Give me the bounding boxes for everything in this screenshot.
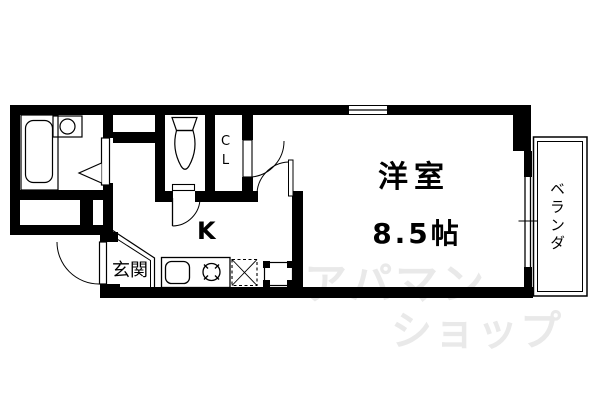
wall-bath-right-lower xyxy=(103,183,113,235)
toilet-tank xyxy=(172,118,197,131)
washing-machine-pan-feet xyxy=(263,261,294,287)
room-name-label: 洋室 xyxy=(366,152,462,196)
toilet-bowl xyxy=(175,131,195,170)
wall-closet-right-upper xyxy=(242,113,253,140)
washbasin xyxy=(60,119,75,134)
toilet-door-leaf xyxy=(173,185,195,191)
entrance-door-leaf xyxy=(100,242,107,284)
wall-closet-right-lower xyxy=(242,177,253,202)
room-door-leaf xyxy=(289,160,294,196)
wall-toilet-left xyxy=(155,113,165,202)
wall-hall-top xyxy=(113,132,157,143)
wall-left xyxy=(10,105,20,235)
walls xyxy=(10,105,533,298)
wall-lower-left xyxy=(10,225,110,235)
closet-door-arc xyxy=(252,141,284,177)
bath-door-leaf xyxy=(102,138,110,185)
wall-top xyxy=(10,105,531,115)
room-size-label: 8.5帖 xyxy=(352,212,482,252)
entrance-label: 玄関 xyxy=(112,256,148,282)
wall-right-lower xyxy=(524,267,532,288)
wall-bath-bottom xyxy=(10,190,103,200)
toilet-door-arc xyxy=(173,198,201,226)
wall-kitchen-top-left xyxy=(155,191,173,202)
folding-bath-door xyxy=(79,163,102,183)
wall-right-upper xyxy=(524,151,532,177)
bathtub xyxy=(26,121,53,183)
wall-bath-right-upper xyxy=(103,113,113,138)
kitchen-sink xyxy=(166,262,190,284)
floor-plan-drawing xyxy=(0,0,600,400)
wall-bottom xyxy=(103,287,533,298)
closet-label: CL xyxy=(218,134,233,172)
entrance-door-arc xyxy=(57,242,99,284)
room-door-arc xyxy=(257,162,289,196)
balcony-label: ベランダ xyxy=(547,181,568,253)
wall-right-thick xyxy=(513,105,531,151)
wall-stub xyxy=(80,200,93,225)
floor-plan: アパマン ショップ xyxy=(0,0,600,400)
closet-door-leaf xyxy=(243,140,252,177)
wall-toilet-right xyxy=(205,113,215,202)
kitchen-label: K xyxy=(197,217,216,245)
